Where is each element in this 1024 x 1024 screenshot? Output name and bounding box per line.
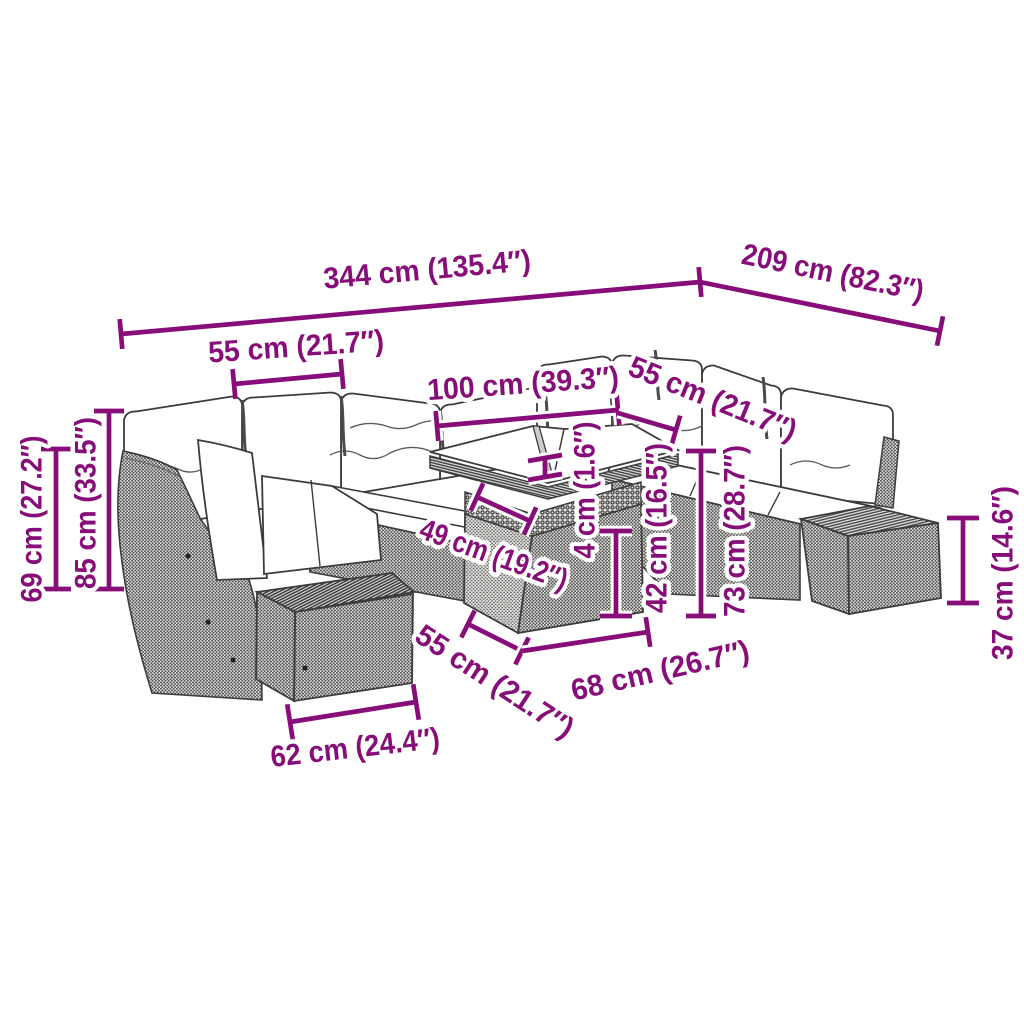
svg-text:42 cm (16.5″): 42 cm (16.5″) xyxy=(641,443,674,613)
svg-text:85 cm (33.5″): 85 cm (33.5″) xyxy=(70,417,103,589)
svg-text:73 cm (28.7″): 73 cm (28.7″) xyxy=(719,445,752,617)
svg-text:4 cm (1.6″): 4 cm (1.6″) xyxy=(569,422,602,559)
svg-text:37 cm (14.6″): 37 cm (14.6″) xyxy=(987,486,1020,660)
svg-text:69 cm (27.2″): 69 cm (27.2″) xyxy=(16,436,49,603)
